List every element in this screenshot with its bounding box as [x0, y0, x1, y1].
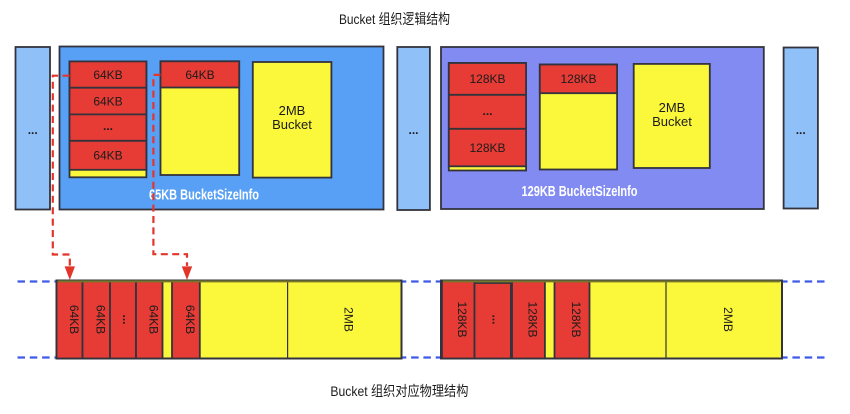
svg-text:64KB: 64KB: [147, 305, 161, 334]
svg-text:...: ...: [120, 314, 134, 324]
svg-text:64KB: 64KB: [93, 68, 122, 82]
svg-text:2MB: 2MB: [279, 103, 306, 118]
svg-text:Bucket 组织逻辑结构: Bucket 组织逻辑结构: [339, 11, 450, 27]
svg-text:128KB: 128KB: [560, 72, 596, 86]
svg-text:64KB: 64KB: [185, 68, 214, 82]
svg-text:...: ...: [490, 314, 504, 324]
svg-text:2MB: 2MB: [721, 307, 735, 332]
svg-text:128KB: 128KB: [569, 301, 583, 337]
svg-text:2MB: 2MB: [342, 307, 356, 332]
svg-text:...: ...: [28, 123, 38, 137]
svg-text:65KB BucketSizeInfo: 65KB BucketSizeInfo: [149, 187, 259, 204]
svg-text:2MB: 2MB: [659, 100, 686, 115]
svg-text:...: ...: [408, 123, 418, 137]
svg-text:64KB: 64KB: [94, 305, 108, 334]
svg-text:64KB: 64KB: [93, 95, 122, 109]
svg-text:64KB: 64KB: [93, 149, 122, 163]
svg-text:129KB BucketSizeInfo: 129KB BucketSizeInfo: [522, 183, 638, 200]
svg-text:128KB: 128KB: [526, 301, 540, 337]
svg-text:128KB: 128KB: [469, 141, 505, 155]
svg-text:128KB: 128KB: [469, 72, 505, 86]
svg-text:Bucket: Bucket: [652, 114, 692, 129]
svg-text:Bucket 组织对应物理结构: Bucket 组织对应物理结构: [330, 383, 468, 399]
svg-text:...: ...: [482, 104, 492, 118]
svg-text:Bucket: Bucket: [272, 117, 312, 132]
svg-text:...: ...: [796, 123, 806, 137]
svg-text:64KB: 64KB: [183, 305, 197, 334]
svg-text:...: ...: [103, 119, 113, 133]
svg-text:128KB: 128KB: [455, 301, 469, 337]
svg-text:64KB: 64KB: [67, 305, 81, 334]
